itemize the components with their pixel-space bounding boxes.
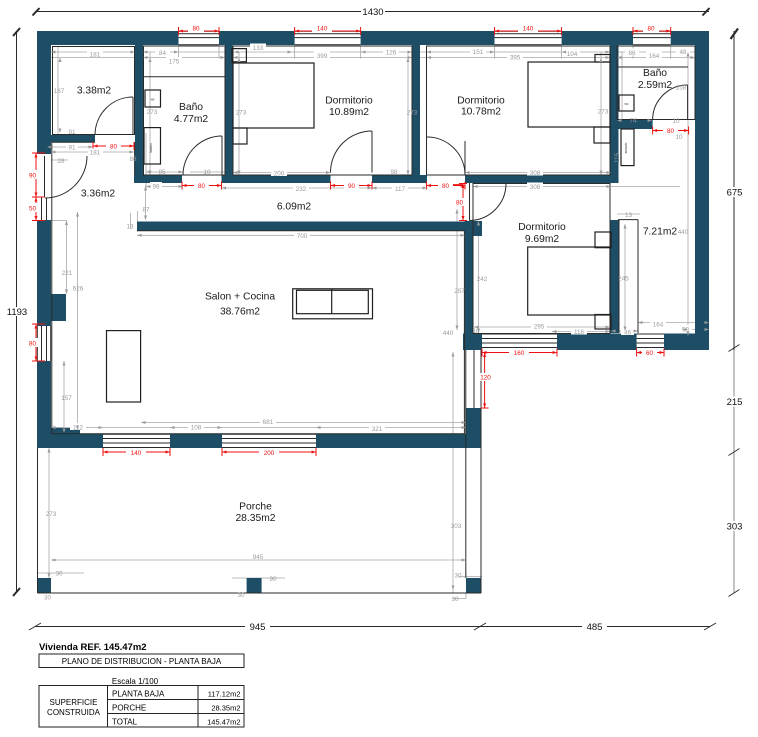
- svg-text:140: 140: [523, 26, 534, 33]
- svg-text:10: 10: [672, 118, 680, 125]
- svg-text:273: 273: [407, 110, 418, 117]
- svg-text:221: 221: [62, 270, 73, 277]
- svg-text:273: 273: [46, 511, 57, 518]
- svg-text:48: 48: [679, 49, 687, 56]
- svg-text:50: 50: [29, 206, 37, 213]
- svg-text:80: 80: [198, 183, 206, 190]
- svg-text:157: 157: [61, 395, 72, 402]
- svg-text:108: 108: [191, 425, 202, 432]
- svg-text:215: 215: [727, 397, 743, 408]
- svg-text:181: 181: [90, 52, 101, 59]
- svg-text:91: 91: [68, 145, 76, 152]
- svg-text:200: 200: [264, 450, 275, 457]
- svg-text:30: 30: [44, 595, 52, 602]
- svg-text:945: 945: [253, 554, 264, 561]
- svg-text:626: 626: [73, 286, 84, 293]
- svg-text:80: 80: [667, 128, 675, 135]
- svg-text:91: 91: [68, 129, 76, 136]
- svg-text:116: 116: [574, 329, 585, 336]
- svg-text:60: 60: [646, 350, 654, 357]
- svg-text:80: 80: [456, 200, 464, 207]
- svg-text:175: 175: [169, 59, 180, 66]
- svg-text:Escala 1/100: Escala 1/100: [112, 677, 159, 686]
- svg-text:2.59m2: 2.59m2: [638, 80, 673, 91]
- svg-text:wc: wc: [151, 98, 155, 102]
- svg-text:Baño: Baño: [643, 68, 667, 79]
- svg-text:74: 74: [629, 118, 637, 125]
- svg-text:98: 98: [390, 169, 398, 176]
- svg-text:CONSTRUIDA: CONSTRUIDA: [47, 708, 101, 717]
- svg-text:232: 232: [296, 186, 307, 193]
- svg-text:151: 151: [473, 49, 484, 56]
- svg-text:395: 395: [510, 55, 521, 62]
- svg-text:30: 30: [454, 573, 462, 580]
- svg-text:164: 164: [649, 53, 660, 60]
- svg-text:Dormitorio: Dormitorio: [518, 222, 566, 233]
- svg-text:28.35m2: 28.35m2: [235, 513, 275, 524]
- svg-text:28: 28: [57, 158, 65, 165]
- svg-text:245: 245: [618, 276, 629, 283]
- svg-text:308: 308: [530, 170, 541, 177]
- svg-text:675: 675: [727, 188, 743, 199]
- svg-text:1193: 1193: [7, 307, 27, 318]
- svg-text:7.21m2: 7.21m2: [643, 227, 678, 238]
- svg-text:28.35m2: 28.35m2: [211, 704, 240, 713]
- svg-text:84: 84: [159, 50, 167, 57]
- svg-text:90: 90: [29, 173, 37, 180]
- svg-text:120: 120: [480, 375, 491, 382]
- svg-text:10.89m2: 10.89m2: [329, 107, 369, 118]
- svg-text:6.09m2: 6.09m2: [277, 202, 312, 213]
- svg-text:90: 90: [348, 183, 356, 190]
- svg-text:30: 30: [451, 596, 459, 603]
- svg-text:321: 321: [372, 426, 383, 433]
- svg-text:10: 10: [675, 134, 683, 141]
- svg-text:104: 104: [567, 51, 578, 58]
- svg-text:945: 945: [250, 622, 266, 633]
- svg-text:399: 399: [317, 53, 328, 60]
- svg-text:30: 30: [237, 592, 245, 599]
- svg-text:200: 200: [274, 171, 285, 178]
- svg-text:80: 80: [192, 26, 200, 33]
- svg-text:1430: 1430: [362, 7, 383, 18]
- svg-text:13: 13: [625, 212, 633, 219]
- svg-text:13: 13: [126, 224, 134, 231]
- svg-text:PORCHE: PORCHE: [112, 704, 146, 713]
- svg-text:126: 126: [386, 50, 397, 57]
- svg-text:9.69m2: 9.69m2: [525, 234, 560, 245]
- svg-text:187: 187: [54, 88, 65, 95]
- svg-text:273: 273: [236, 110, 247, 117]
- svg-text:Dormitorio: Dormitorio: [457, 96, 505, 107]
- svg-text:485: 485: [587, 622, 603, 633]
- svg-text:273: 273: [598, 109, 609, 116]
- svg-text:38.76m2: 38.76m2: [220, 307, 260, 318]
- svg-text:Vivienda REF. 145.47m2: Vivienda REF. 145.47m2: [39, 642, 147, 653]
- svg-text:115: 115: [614, 152, 621, 163]
- svg-text:87: 87: [142, 207, 150, 214]
- svg-text:308: 308: [530, 184, 541, 191]
- svg-text:80: 80: [647, 26, 655, 33]
- svg-text:257: 257: [454, 288, 465, 295]
- svg-text:133: 133: [253, 45, 264, 52]
- svg-text:98: 98: [152, 184, 160, 191]
- svg-text:Baño: Baño: [179, 102, 203, 113]
- svg-text:80: 80: [442, 183, 450, 190]
- svg-text:164: 164: [653, 322, 664, 329]
- svg-text:303: 303: [727, 522, 743, 533]
- svg-text:242: 242: [477, 276, 488, 283]
- svg-text:PLANO DE DISTRIBUCION - PLANTA: PLANO DE DISTRIBUCION - PLANTA BAJA: [62, 657, 222, 666]
- svg-text:160: 160: [514, 350, 525, 357]
- svg-text:lavabo: lavabo: [149, 143, 153, 153]
- svg-text:80: 80: [29, 341, 37, 348]
- svg-text:303: 303: [451, 523, 462, 530]
- svg-text:30: 30: [55, 571, 63, 578]
- svg-text:681: 681: [263, 419, 274, 426]
- svg-text:armario: armario: [624, 142, 628, 153]
- svg-text:Dormitorio: Dormitorio: [325, 96, 373, 107]
- svg-text:88: 88: [129, 156, 137, 163]
- svg-text:4.77m2: 4.77m2: [174, 114, 209, 125]
- svg-text:Salon + Cocina: Salon + Cocina: [205, 292, 275, 303]
- svg-text:wc: wc: [625, 102, 629, 106]
- svg-text:440: 440: [443, 330, 454, 337]
- svg-text:145.47m2: 145.47m2: [207, 718, 240, 727]
- svg-text:295: 295: [534, 324, 545, 331]
- svg-text:Porche: Porche: [239, 502, 272, 513]
- svg-text:90: 90: [269, 576, 277, 583]
- svg-text:117: 117: [395, 186, 406, 193]
- svg-text:3.38m2: 3.38m2: [77, 86, 112, 97]
- svg-text:3.36m2: 3.36m2: [81, 189, 116, 200]
- svg-text:TOTAL: TOTAL: [112, 718, 138, 727]
- svg-text:181: 181: [90, 150, 101, 157]
- svg-text:440: 440: [678, 229, 689, 236]
- svg-text:10.78m2: 10.78m2: [461, 107, 501, 118]
- svg-text:80: 80: [110, 144, 118, 151]
- svg-text:140: 140: [317, 26, 328, 33]
- svg-text:158: 158: [676, 85, 687, 92]
- svg-text:140: 140: [131, 450, 142, 457]
- svg-text:86: 86: [628, 50, 636, 57]
- svg-text:SUPERFICIE: SUPERFICIE: [49, 698, 97, 707]
- svg-text:273: 273: [147, 109, 158, 116]
- svg-text:700: 700: [297, 233, 308, 240]
- svg-text:85: 85: [158, 169, 166, 176]
- svg-text:10: 10: [203, 169, 211, 176]
- svg-text:117.12m2: 117.12m2: [208, 690, 241, 699]
- svg-text:PLANTA BAJA: PLANTA BAJA: [112, 690, 165, 699]
